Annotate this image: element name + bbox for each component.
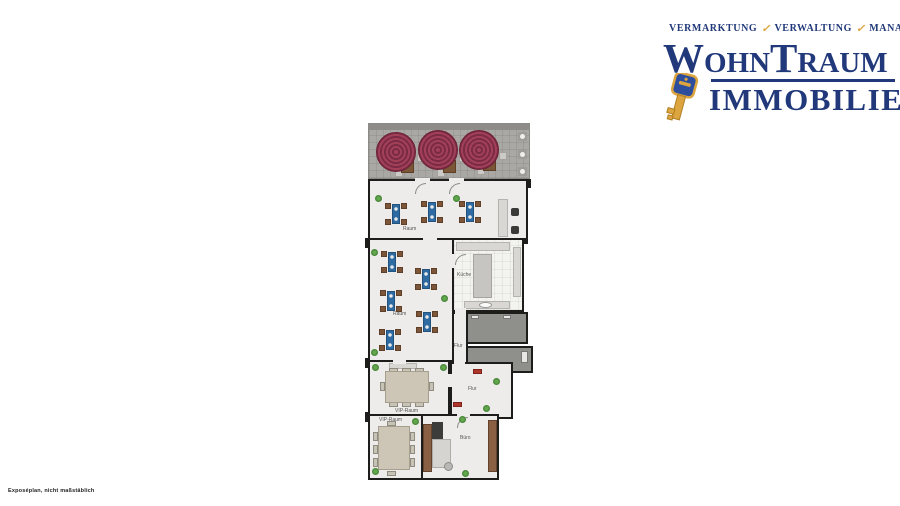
wall-lamp <box>518 150 527 159</box>
logo-tagline: VERMARKTUNG ✓ VERWALTUNG ✓ MANAGEMENT ✓ <box>669 22 897 35</box>
tagline-word: VERWALTUNG <box>774 23 852 34</box>
wall-stub <box>365 358 370 368</box>
key-icon <box>665 73 703 127</box>
chair-icon <box>385 219 391 225</box>
plant-icon <box>459 416 466 423</box>
chair-icon <box>475 201 481 207</box>
room-flur1 <box>452 312 468 364</box>
door-gap <box>449 178 464 183</box>
plant-icon <box>462 470 469 477</box>
expose-page: { "logo": { "tagline": { "items": ["VERM… <box>0 0 900 506</box>
check-icon: ✓ <box>856 22 865 35</box>
vip-chair <box>410 458 415 467</box>
room-label: Raum <box>393 311 406 317</box>
plant-icon <box>441 295 448 302</box>
door-gap <box>455 308 466 314</box>
door-gap <box>454 360 465 366</box>
chair-icon <box>381 251 387 257</box>
wc-fixture <box>471 315 479 319</box>
plant-icon <box>493 378 500 385</box>
chair-icon <box>416 311 422 317</box>
chair-icon <box>395 345 401 351</box>
bookshelf <box>432 422 443 439</box>
chair-icon <box>415 268 421 274</box>
vip-chair <box>410 445 415 454</box>
chair-icon <box>380 306 386 312</box>
wc-fixture <box>503 315 511 319</box>
chair-icon <box>416 327 422 333</box>
table-top <box>392 204 400 224</box>
tagline-word: MANAGEMENT <box>869 23 900 34</box>
kitchen-counter <box>456 242 510 251</box>
chair-icon <box>437 217 443 223</box>
check-icon: ✓ <box>761 22 770 35</box>
wall-stub <box>365 238 370 248</box>
chair-icon <box>432 327 438 333</box>
wall-stub <box>526 179 531 188</box>
dining-table-group <box>381 249 403 275</box>
dining-table-group <box>416 309 438 335</box>
kitchen-island <box>473 254 492 298</box>
plant-icon <box>412 418 419 425</box>
company-logo: VERMARKTUNG ✓ VERWALTUNG ✓ MANAGEMENT ✓ … <box>663 22 897 116</box>
chair-icon <box>431 284 437 290</box>
parasol-icon <box>376 132 416 172</box>
room-label: Küche <box>457 272 471 278</box>
chair-icon <box>432 311 438 317</box>
wardrobe <box>423 424 432 472</box>
table-top <box>386 330 394 350</box>
vip-chair <box>387 471 396 476</box>
room-label: Flur <box>468 386 477 392</box>
room-label: VIP-Raum <box>379 417 402 423</box>
table-top <box>423 312 431 332</box>
parasol-icon <box>459 130 499 170</box>
parasol-icon <box>418 130 458 170</box>
door-gap <box>423 236 437 241</box>
plant-icon <box>440 364 447 371</box>
chair-icon <box>401 219 407 225</box>
kitchen-sink <box>479 302 492 308</box>
dining-table-group <box>385 201 407 227</box>
table-top <box>422 269 430 289</box>
chair-icon <box>397 267 403 273</box>
chair-icon <box>401 203 407 209</box>
tagline-word: VERMARKTUNG <box>669 23 757 34</box>
chair-icon <box>379 329 385 335</box>
vip-table <box>385 371 429 403</box>
brand-wordmark: WohnTraum IMMOBILIEN <box>663 37 897 116</box>
dining-table-group <box>379 327 401 353</box>
room-label: Raum <box>403 226 416 232</box>
room-label: VIP-Raum <box>395 408 418 414</box>
table-top <box>388 252 396 272</box>
chair-icon <box>385 203 391 209</box>
room-label: Flur <box>454 343 463 349</box>
brand-name-bottom: IMMOBILIEN <box>709 83 897 116</box>
floor-plan: Raum Raum Küche <box>365 123 537 485</box>
door-gap <box>448 374 453 387</box>
chair-icon <box>459 217 465 223</box>
red-mat <box>453 402 462 407</box>
plant-icon <box>375 195 382 202</box>
chair-icon <box>395 329 401 335</box>
disclaimer-text: Exposéplan, nicht maßstäblich <box>8 488 95 494</box>
plant-icon <box>371 249 378 256</box>
plant-icon <box>372 364 379 371</box>
table-top <box>466 202 474 222</box>
chair-icon <box>421 201 427 207</box>
chair-icon <box>459 201 465 207</box>
bar-stool <box>511 226 519 234</box>
office-chair <box>444 462 453 471</box>
chair-icon <box>475 217 481 223</box>
chair-icon <box>396 290 402 296</box>
plant-icon <box>372 468 379 475</box>
door-gap <box>393 359 406 364</box>
plant-icon <box>453 195 460 202</box>
vip-table <box>378 426 410 470</box>
chair-icon <box>379 345 385 351</box>
table-top <box>428 202 436 222</box>
plant-icon <box>483 405 490 412</box>
door-gap <box>415 178 430 183</box>
dining-table-group <box>421 199 443 225</box>
wc-fixture <box>521 351 528 363</box>
red-mat <box>473 369 482 374</box>
plant-icon <box>371 349 378 356</box>
chair-icon <box>431 268 437 274</box>
chair-icon <box>380 290 386 296</box>
terrace-seat <box>499 152 507 160</box>
dining-table-group <box>459 199 481 225</box>
wall-lamp <box>518 167 527 176</box>
bar-stool <box>511 208 519 216</box>
dining-table-group <box>415 266 437 292</box>
wardrobe <box>488 420 497 472</box>
vip-chair <box>429 382 434 391</box>
wall-stub <box>365 412 370 422</box>
chair-icon <box>437 201 443 207</box>
table-top <box>387 291 395 311</box>
chair-icon <box>397 251 403 257</box>
kitchen-counter <box>513 247 521 297</box>
chair-icon <box>415 284 421 290</box>
wall-stub <box>522 238 528 244</box>
bar-counter <box>498 199 508 237</box>
room-label: Büro <box>460 435 471 441</box>
chair-icon <box>421 217 427 223</box>
vip-chair <box>410 432 415 441</box>
wall-lamp <box>518 132 527 141</box>
chair-icon <box>381 267 387 273</box>
terrace-edge <box>369 124 529 130</box>
